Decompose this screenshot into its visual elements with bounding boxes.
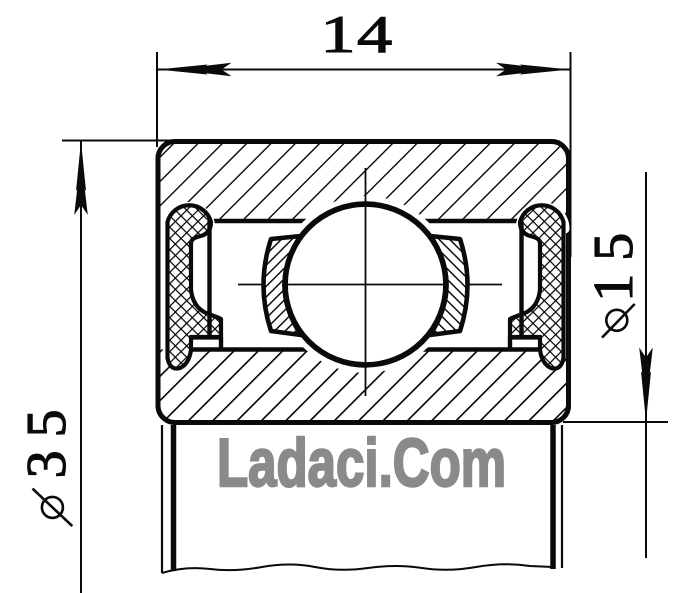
svg-text:14: 14 [320,5,393,64]
svg-text:35: 35 [16,396,78,478]
svg-text:15: 15 [583,220,645,302]
